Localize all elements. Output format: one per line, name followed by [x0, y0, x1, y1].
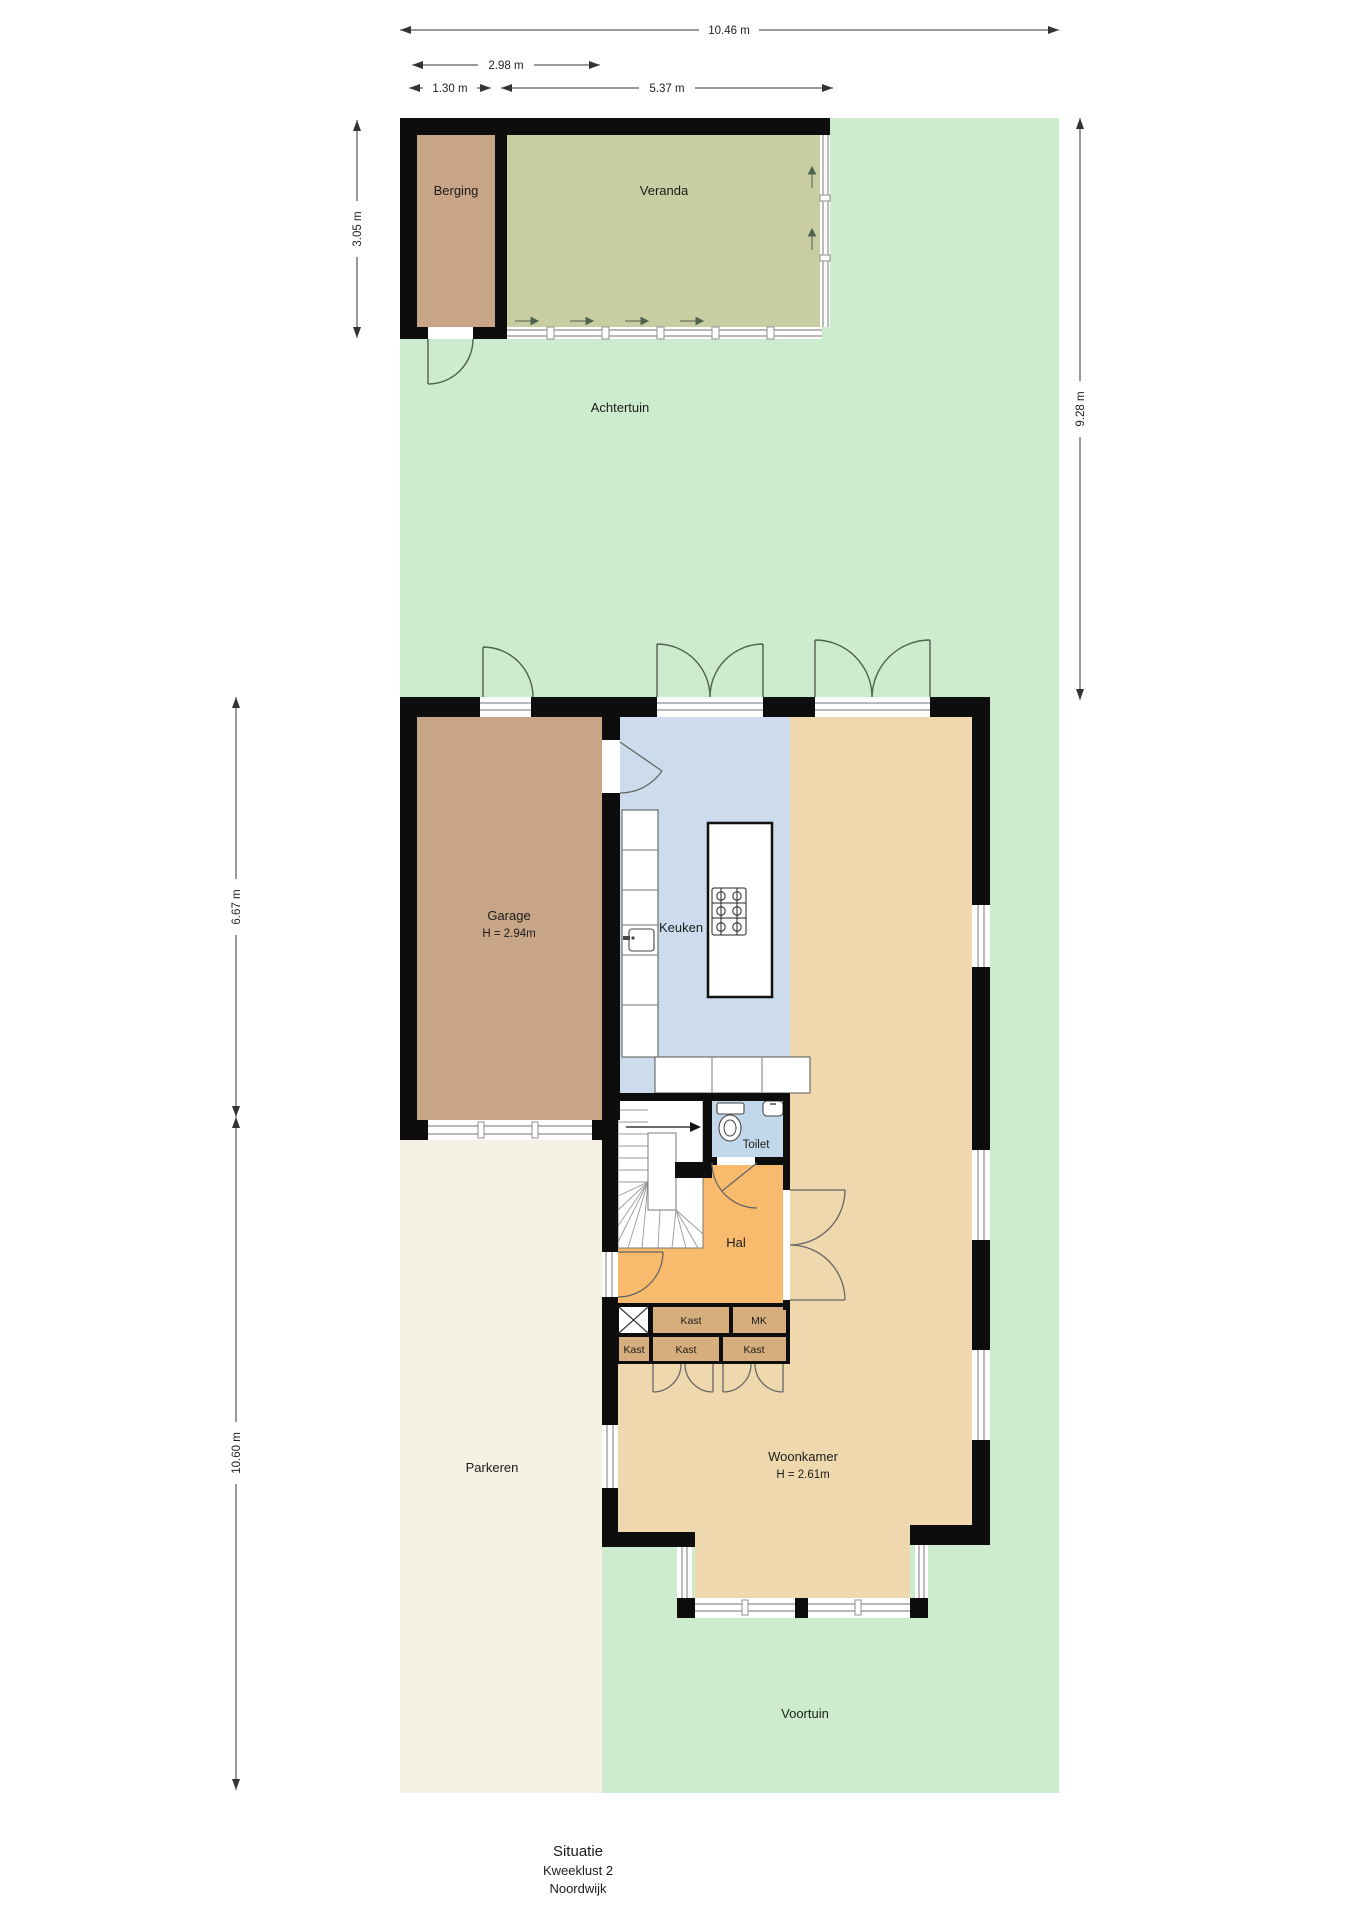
hal-label: Hal	[726, 1235, 746, 1250]
woonkamer-height-label: H = 2.61m	[776, 1469, 829, 1481]
dim-berging-depth: 3.05 m	[348, 120, 365, 338]
berging-door-opening	[428, 327, 473, 339]
svg-text:2.98 m: 2.98 m	[488, 60, 523, 72]
dim-garage-section: 6.67 m	[227, 697, 244, 1117]
title-line2: Kweeklust 2	[543, 1863, 613, 1878]
garage-height-label: H = 2.94m	[482, 928, 535, 940]
stove-icon	[712, 888, 746, 935]
svg-text:5.37 m: 5.37 m	[649, 83, 684, 95]
title-line1: Situatie	[553, 1843, 603, 1860]
woonkamer-label: Woonkamer	[768, 1449, 839, 1464]
toilet-label: Toilet	[743, 1139, 771, 1151]
voortuin-label: Voortuin	[781, 1706, 829, 1721]
dim-berging-width: 1.30 m	[409, 79, 491, 96]
garage-rear-window	[428, 1120, 592, 1140]
achtertuin-label: Achtertuin	[591, 400, 650, 415]
bay-left-window	[677, 1547, 692, 1598]
berging-room	[417, 135, 495, 327]
right-wall-window-2	[972, 1150, 990, 1240]
keuken-label: Keuken	[659, 920, 703, 935]
kast2-label: Kast	[623, 1344, 644, 1356]
dim-front-section: 10.60 m	[227, 1117, 244, 1790]
veranda-label: Veranda	[640, 183, 689, 198]
garage-label: Garage	[487, 908, 530, 923]
kast3-label: Kast	[675, 1344, 696, 1356]
parkeren-label: Parkeren	[466, 1460, 519, 1475]
bay-right-window	[915, 1545, 928, 1598]
kitchen-counter-row	[655, 1057, 810, 1093]
kast4-label: Kast	[743, 1344, 764, 1356]
svg-text:3.05 m: 3.05 m	[352, 211, 364, 246]
floorplan-page: 10.46 m 2.98 m 1.30 m 5.37 m	[0, 0, 1358, 1920]
svg-text:9.28 m: 9.28 m	[1075, 391, 1087, 426]
dim-top-width: 10.46 m	[400, 21, 1059, 38]
toilet-sink-icon	[763, 1101, 783, 1116]
right-wall-window-1	[972, 905, 990, 967]
title-block: Situatie Kweeklust 2 Noordwijk	[543, 1843, 613, 1896]
veranda-front-windows	[507, 327, 822, 339]
veranda-side-windows	[820, 135, 830, 327]
dim-veranda-width: 5.37 m	[501, 79, 833, 96]
berging-label: Berging	[434, 183, 479, 198]
dim-garden-depth: 9.28 m	[1071, 118, 1088, 700]
svg-text:1.30 m: 1.30 m	[432, 83, 467, 95]
left-wall-window	[602, 1425, 618, 1488]
dim-berging-total: 2.98 m	[412, 56, 600, 73]
title-line3: Noordwijk	[549, 1881, 607, 1896]
veranda-room	[507, 135, 822, 327]
svg-text:6.67 m: 6.67 m	[231, 889, 243, 924]
svg-text:10.60 m: 10.60 m	[231, 1432, 243, 1474]
svg-text:10.46 m: 10.46 m	[708, 25, 750, 37]
mk-label: MK	[751, 1315, 767, 1327]
floorplan-svg: 10.46 m 2.98 m 1.30 m 5.37 m	[0, 0, 1358, 1920]
kast1-label: Kast	[680, 1315, 701, 1327]
right-wall-window-3	[972, 1350, 990, 1440]
